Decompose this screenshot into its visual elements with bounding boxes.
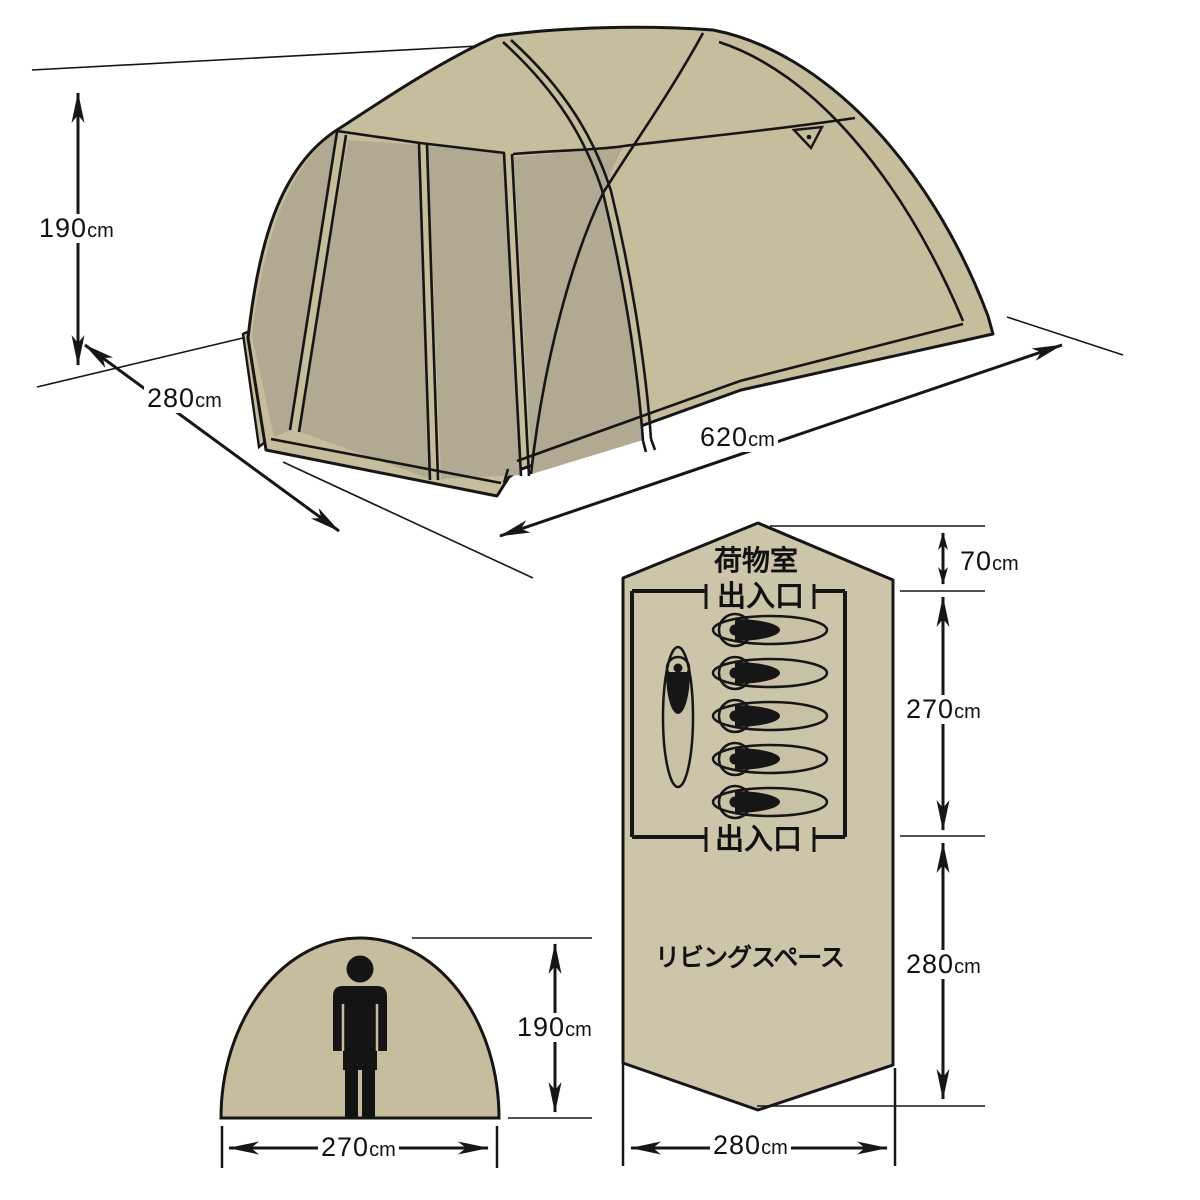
guide-ground-left: [37, 337, 247, 387]
vent-toggle-dot: [807, 135, 812, 140]
entrance-bottom-label: 出入口: [715, 826, 802, 855]
guide-top: [32, 46, 478, 70]
cargo-room-label: 荷物室: [714, 547, 798, 575]
cargo-depth-label: 70cm: [957, 547, 1022, 576]
perspective-view: [32, 27, 1123, 578]
tent-3d-drawing: [243, 27, 993, 496]
diagram-artwork: [0, 0, 1200, 1200]
front-height-label: 190cm: [514, 1013, 595, 1042]
sleeping-bag-vertical-icon: [663, 647, 693, 787]
living-depth-label: 280cm: [903, 950, 984, 979]
sleeping-bag-icon: [713, 700, 827, 732]
front-width-label: 270cm: [318, 1133, 399, 1162]
perspective-height-label: 190cm: [36, 214, 117, 243]
front-view: [221, 938, 592, 1168]
entrance-top-label: 出入口: [717, 583, 804, 612]
sleeping-bag-icon: [713, 743, 827, 775]
perspective-width-label: 280cm: [144, 384, 225, 413]
plan-width-label: 280cm: [710, 1131, 791, 1160]
guide-length-far: [1007, 317, 1123, 355]
perspective-length-label: 620cm: [697, 423, 778, 452]
bedroom-depth-label: 270cm: [903, 695, 984, 724]
floor-plan: [623, 523, 985, 1166]
sleeping-bag-icon: [713, 657, 827, 689]
sleeping-bag-icon: [713, 614, 827, 646]
living-space-label: リビングスペース: [655, 946, 844, 971]
skirt-notch-rib-a: [643, 441, 646, 452]
tent-dimension-diagram: 190cm 280cm 620cm 荷物室 出入口 出入口 リビングスペース 7…: [0, 0, 1200, 1200]
sleeping-bag-icon: [713, 786, 827, 818]
skirt-notch-rib-b: [651, 439, 655, 450]
